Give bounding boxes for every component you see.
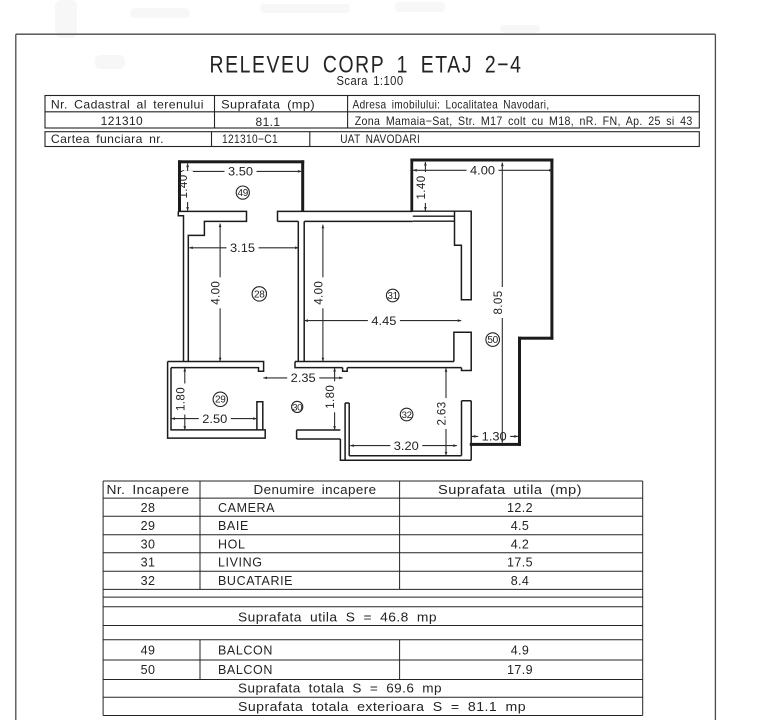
- svg-text:12.2: 12.2: [507, 501, 533, 515]
- svg-text:2.50: 2.50: [202, 412, 227, 426]
- svg-text:49: 49: [238, 188, 249, 199]
- svg-text:1.80: 1.80: [323, 385, 337, 409]
- svg-text:HOL: HOL: [218, 537, 246, 551]
- svg-text:Suprafata (mp): Suprafata (mp): [221, 97, 315, 111]
- svg-text:UAT NAVODARI: UAT NAVODARI: [340, 132, 420, 146]
- svg-text:1.80: 1.80: [173, 387, 187, 411]
- svg-text:Zona Mamaia−Sat, Str. M17 colt: Zona Mamaia−Sat, Str. M17 colt cu M18, n…: [355, 114, 693, 128]
- svg-text:3.50: 3.50: [228, 165, 253, 179]
- svg-text:31: 31: [387, 291, 398, 302]
- svg-text:CAMERA: CAMERA: [218, 501, 275, 515]
- svg-text:32: 32: [141, 574, 156, 588]
- svg-text:LIVING: LIVING: [218, 556, 263, 570]
- svg-text:BAIE: BAIE: [218, 519, 249, 533]
- svg-text:BALCON: BALCON: [218, 663, 273, 677]
- svg-text:Adresa imobilului: Localitatea: Adresa imobilului: Localitatea Navodari,: [353, 97, 550, 111]
- svg-text:29: 29: [215, 395, 226, 406]
- svg-text:28: 28: [254, 289, 265, 300]
- svg-text:Nr. Incapere: Nr. Incapere: [107, 483, 190, 497]
- svg-text:Cartea funciara nr.: Cartea funciara nr.: [51, 132, 164, 146]
- svg-text:Suprafata totala exterioara S: Suprafata totala exterioara S = 81.1 mp: [238, 700, 526, 714]
- svg-text:30: 30: [292, 402, 302, 413]
- svg-text:Suprafata utila S = 46.8 mp: Suprafata utila S = 46.8 mp: [238, 611, 437, 625]
- svg-text:Nr. Cadastral al terenului: Nr. Cadastral al terenului: [51, 97, 204, 111]
- svg-text:50: 50: [141, 663, 156, 677]
- svg-text:4.9: 4.9: [511, 644, 530, 658]
- svg-text:49: 49: [141, 644, 156, 658]
- svg-text:8.4: 8.4: [511, 574, 530, 588]
- svg-text:1.40: 1.40: [414, 175, 428, 199]
- svg-text:29: 29: [141, 519, 156, 533]
- svg-text:81.1: 81.1: [256, 115, 281, 129]
- svg-text:8.05: 8.05: [491, 290, 505, 314]
- svg-text:2.35: 2.35: [291, 371, 316, 385]
- svg-text:2.63: 2.63: [435, 401, 449, 425]
- svg-text:Suprafata totala S = 69.6 mp: Suprafata totala S = 69.6 mp: [238, 682, 442, 696]
- svg-text:31: 31: [141, 556, 156, 570]
- svg-text:50: 50: [487, 335, 498, 346]
- svg-text:4.00: 4.00: [209, 281, 223, 305]
- svg-text:4.00: 4.00: [311, 281, 325, 305]
- svg-text:28: 28: [141, 501, 156, 515]
- svg-text:32: 32: [402, 410, 412, 421]
- svg-text:3.20: 3.20: [394, 439, 419, 453]
- svg-text:17.5: 17.5: [507, 556, 533, 570]
- svg-text:Denumire incapere: Denumire incapere: [254, 483, 377, 497]
- svg-text:121310−C1: 121310−C1: [222, 132, 278, 146]
- svg-text:4.2: 4.2: [511, 537, 530, 551]
- svg-text:4.5: 4.5: [511, 519, 530, 533]
- svg-text:30: 30: [141, 537, 156, 551]
- svg-text:BALCON: BALCON: [218, 644, 273, 658]
- svg-text:BUCATARIE: BUCATARIE: [218, 574, 293, 588]
- svg-text:17.9: 17.9: [507, 663, 533, 677]
- svg-text:4.00: 4.00: [470, 164, 495, 178]
- svg-text:121310: 121310: [101, 114, 143, 128]
- svg-text:1.30: 1.30: [482, 430, 507, 444]
- svg-text:1.40: 1.40: [176, 174, 190, 198]
- svg-text:Suprafata utila (mp): Suprafata utila (mp): [438, 483, 582, 497]
- svg-text:3.15: 3.15: [230, 241, 255, 255]
- svg-text:Scara 1:100: Scara 1:100: [337, 73, 404, 88]
- svg-text:4.45: 4.45: [371, 314, 396, 328]
